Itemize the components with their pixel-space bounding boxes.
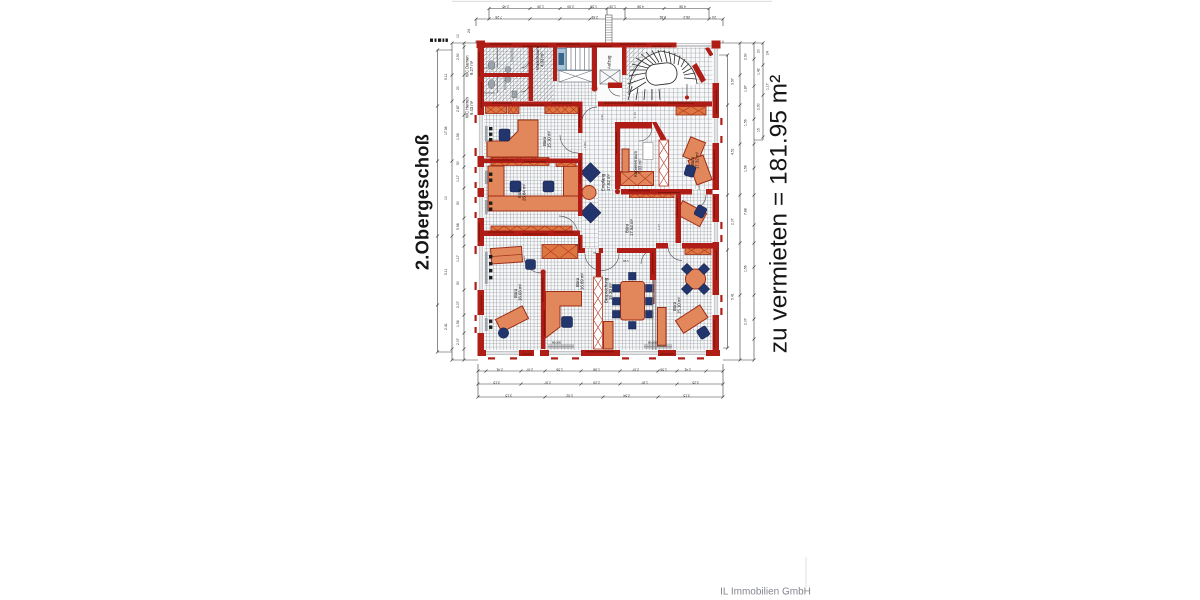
svg-text:15.10 m²: 15.10 m²: [677, 296, 682, 314]
svg-text:2.07: 2.07: [632, 367, 639, 371]
svg-text:1.42: 1.42: [757, 68, 761, 75]
svg-text:Aufzug: Aufzug: [607, 55, 612, 69]
svg-text:76: 76: [593, 251, 597, 255]
svg-text:1.56: 1.56: [744, 165, 748, 172]
svg-text:2.54: 2.54: [623, 393, 630, 397]
svg-text:20: 20: [456, 86, 460, 90]
svg-text:3.15: 3.15: [683, 393, 690, 397]
svg-text:5.11: 5.11: [444, 74, 448, 80]
svg-text:2.91: 2.91: [600, 114, 604, 120]
svg-text:1.56: 1.56: [456, 320, 460, 327]
svg-text:1.17: 1.17: [456, 255, 460, 262]
svg-text:80x350: 80x350: [648, 341, 658, 345]
svg-text:2.41: 2.41: [444, 323, 448, 330]
svg-text:1.56: 1.56: [744, 119, 748, 126]
svg-text:16.69 m²: 16.69 m²: [580, 272, 585, 290]
svg-text:3.15: 3.15: [493, 380, 500, 384]
svg-text:7.88: 7.88: [744, 208, 748, 215]
svg-text:2.07: 2.07: [526, 367, 533, 371]
svg-text:2.41: 2.41: [496, 367, 503, 371]
svg-text:28.2: 28.2: [683, 15, 690, 19]
svg-text:1.56: 1.56: [583, 142, 587, 148]
svg-text:2.07: 2.07: [456, 338, 460, 345]
svg-text:1.39: 1.39: [537, 5, 544, 9]
svg-text:2.Obergeschoß: 2.Obergeschoß: [413, 134, 433, 270]
svg-text:5.11: 5.11: [444, 269, 448, 275]
svg-text:2.81: 2.81: [659, 15, 666, 19]
svg-text:2.87: 2.87: [456, 105, 460, 112]
svg-text:9.43 m²: 9.43 m²: [469, 100, 474, 115]
svg-text:IL Immobilien GmbH: IL Immobilien GmbH: [720, 587, 811, 598]
svg-text:17.32 m²: 17.32 m²: [695, 151, 700, 169]
svg-text:17.36: 17.36: [444, 126, 448, 135]
svg-text:24: 24: [467, 29, 471, 33]
svg-text:5.98: 5.98: [456, 223, 460, 230]
svg-text:2.07: 2.07: [744, 318, 748, 325]
svg-text:4.98: 4.98: [637, 5, 644, 9]
svg-text:7.25: 7.25: [495, 15, 502, 19]
svg-text:7.03 m²: 7.03 m²: [638, 159, 643, 174]
svg-text:1.26: 1.26: [609, 5, 616, 9]
svg-text:10: 10: [456, 34, 460, 38]
svg-text:24: 24: [766, 51, 770, 55]
svg-text:2.00: 2.00: [567, 5, 574, 9]
svg-text:1.56: 1.56: [556, 367, 563, 371]
svg-text:80x350: 80x350: [552, 341, 562, 345]
svg-text:15: 15: [757, 128, 761, 132]
svg-text:2.90: 2.90: [744, 53, 748, 60]
svg-text:2.41: 2.41: [684, 367, 691, 371]
svg-text:3.25: 3.25: [692, 380, 699, 384]
svg-text:2.91: 2.91: [591, 15, 598, 19]
svg-text:50: 50: [456, 161, 460, 165]
svg-text:2.29: 2.29: [593, 380, 600, 384]
svg-text:3.15: 3.15: [505, 393, 512, 397]
svg-text:1.87: 1.87: [641, 380, 648, 384]
svg-text:10: 10: [444, 196, 448, 200]
svg-text:4.03 m²: 4.03 m²: [540, 52, 545, 67]
svg-text:2.07: 2.07: [456, 301, 460, 308]
svg-text:26.84 m²: 26.84 m²: [522, 183, 527, 201]
svg-text:4.51: 4.51: [731, 148, 735, 155]
svg-text:15.10 m²: 15.10 m²: [547, 130, 552, 148]
svg-text:17.62 m²: 17.62 m²: [606, 173, 611, 191]
svg-text:50: 50: [456, 281, 460, 285]
svg-text:Empfang: Empfang: [601, 173, 606, 191]
svg-text:1.56: 1.56: [744, 265, 748, 272]
svg-text:24: 24: [712, 15, 716, 19]
svg-text:2.97: 2.97: [544, 380, 551, 384]
svg-text:1.17: 1.17: [456, 175, 460, 182]
svg-text:20: 20: [757, 49, 761, 53]
svg-text:2.90: 2.90: [456, 53, 460, 60]
svg-text:3.57: 3.57: [731, 78, 735, 85]
svg-text:2.90: 2.90: [757, 103, 761, 110]
svg-text:2.02: 2.02: [566, 393, 573, 397]
svg-text:1.56: 1.56: [456, 133, 460, 140]
svg-text:1.16: 1.16: [633, 112, 637, 118]
svg-text:17.54 m²: 17.54 m²: [629, 218, 634, 236]
svg-text:2.07: 2.07: [731, 218, 735, 225]
svg-text:19.30 m²: 19.30 m²: [608, 282, 613, 300]
svg-text:2.45: 2.45: [502, 5, 509, 9]
svg-text:4.98: 4.98: [679, 5, 686, 9]
svg-text:1.98: 1.98: [593, 367, 600, 371]
svg-text:9.27 m²: 9.27 m²: [469, 60, 474, 75]
svg-text:16.03 m²: 16.03 m²: [518, 283, 523, 301]
svg-text:5.41: 5.41: [731, 293, 735, 300]
svg-text:zu vermieten = 181.95 m²: zu vermieten = 181.95 m²: [766, 75, 793, 353]
svg-text:96: 96: [575, 243, 579, 247]
svg-text:88.5: 88.5: [623, 259, 629, 263]
svg-text:1.87: 1.87: [744, 85, 748, 92]
svg-text:1.17: 1.17: [657, 224, 661, 230]
svg-text:2.07: 2.07: [697, 184, 701, 190]
svg-text:1.56: 1.56: [660, 367, 667, 371]
svg-text:50: 50: [456, 201, 460, 205]
svg-text:1.56: 1.56: [590, 5, 597, 9]
